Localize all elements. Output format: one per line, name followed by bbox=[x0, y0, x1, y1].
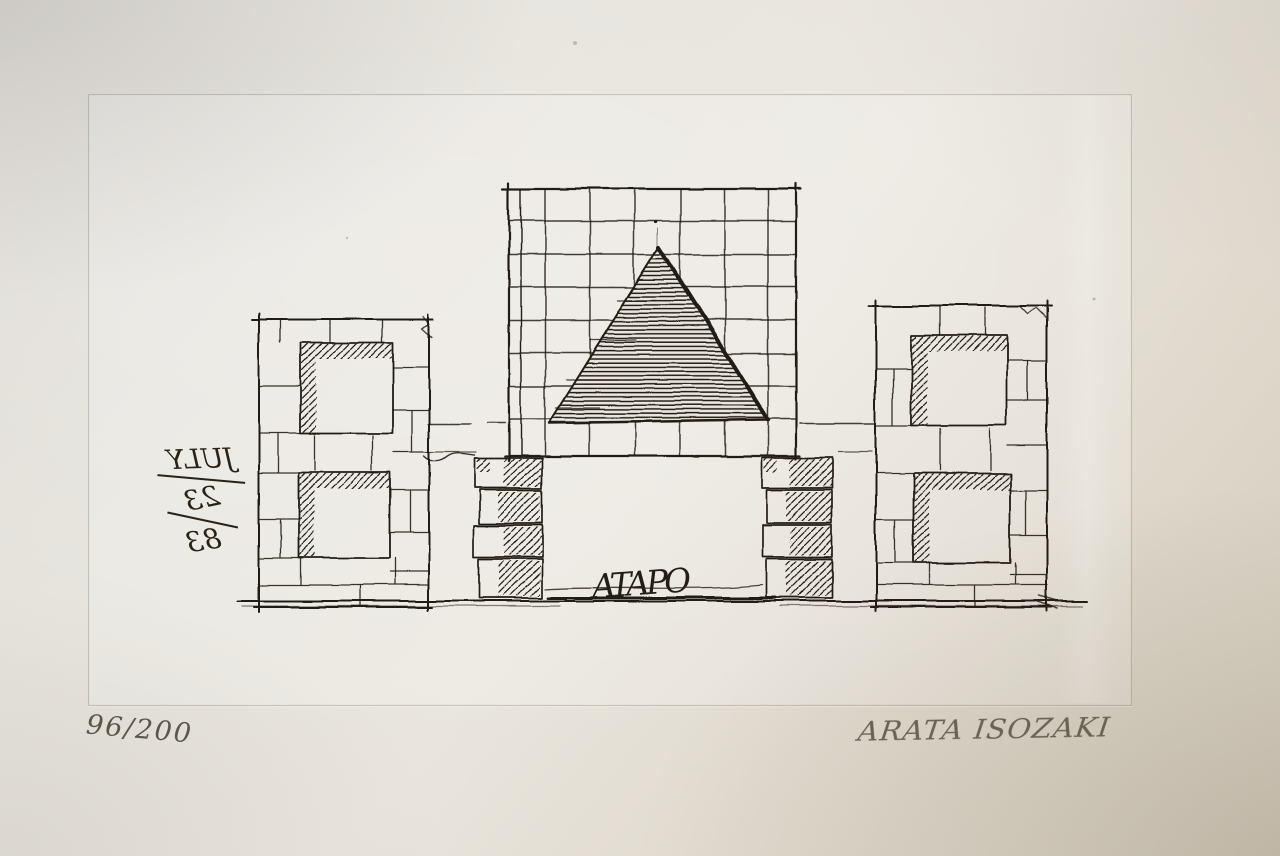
left-stone-block bbox=[252, 313, 434, 612]
photographed-print: ATAPO JULY 23 83 96/200 ARATA ISOZAKI bbox=[0, 0, 1280, 856]
dust-specks bbox=[346, 41, 1096, 301]
plate-date-month: JULY bbox=[148, 444, 253, 476]
right-stone-block bbox=[869, 300, 1058, 611]
artist-signature: ARATA ISOZAKI bbox=[856, 711, 1170, 748]
right-pier bbox=[762, 458, 832, 598]
left-pier bbox=[474, 458, 542, 598]
pyramid bbox=[549, 220, 768, 423]
plate-date-inscription: JULY 23 83 bbox=[148, 444, 256, 557]
plate-date-day: 23 bbox=[148, 474, 256, 524]
plate-scribble: ATAPO bbox=[588, 560, 693, 606]
